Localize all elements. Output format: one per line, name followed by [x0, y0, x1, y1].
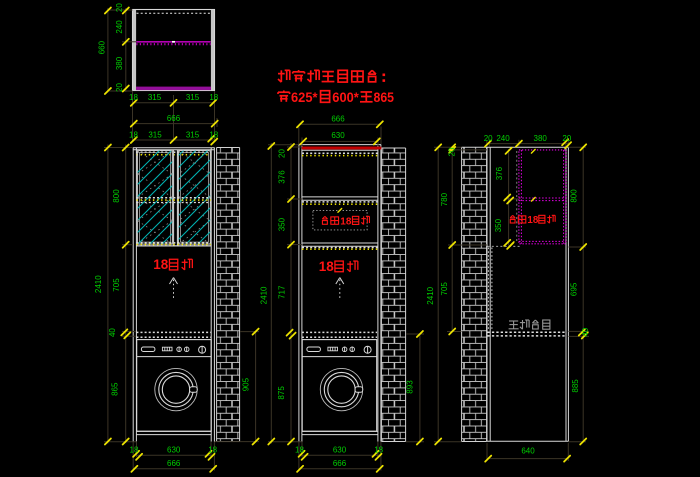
- svg-text:905: 905: [241, 377, 250, 391]
- svg-text:18: 18: [374, 445, 383, 454]
- svg-text:893: 893: [406, 380, 415, 394]
- svg-text:666: 666: [167, 459, 181, 468]
- svg-text:18: 18: [527, 215, 538, 226]
- svg-text:695: 695: [569, 282, 578, 296]
- svg-text:18: 18: [129, 93, 138, 102]
- svg-text:800: 800: [112, 189, 121, 203]
- svg-text:660: 660: [97, 40, 106, 54]
- svg-text:315: 315: [148, 130, 162, 139]
- svg-text:40: 40: [108, 328, 117, 337]
- svg-text:350: 350: [494, 218, 503, 232]
- svg-text:20: 20: [484, 134, 493, 143]
- svg-text:20: 20: [115, 3, 124, 12]
- svg-text:705: 705: [440, 282, 449, 296]
- svg-text:2410: 2410: [260, 286, 269, 304]
- svg-text:18: 18: [340, 216, 352, 227]
- svg-text:865: 865: [111, 382, 120, 396]
- svg-text:865: 865: [374, 89, 395, 105]
- svg-text:20: 20: [448, 147, 457, 156]
- svg-text:18: 18: [130, 445, 139, 454]
- svg-text:315: 315: [148, 93, 162, 102]
- svg-text:18: 18: [209, 93, 218, 102]
- svg-text:666: 666: [333, 459, 347, 468]
- svg-text:705: 705: [112, 278, 121, 292]
- svg-text:875: 875: [277, 386, 286, 400]
- svg-text:625*: 625*: [291, 89, 318, 105]
- svg-text:885: 885: [571, 379, 580, 393]
- svg-text:18: 18: [208, 445, 217, 454]
- svg-text:2410: 2410: [426, 286, 435, 304]
- svg-text:240: 240: [496, 134, 510, 143]
- svg-text:20: 20: [278, 149, 287, 158]
- svg-text:380: 380: [534, 134, 548, 143]
- svg-text:40: 40: [581, 327, 590, 336]
- svg-text:18: 18: [129, 130, 138, 139]
- svg-text:376: 376: [495, 166, 504, 180]
- svg-text:376: 376: [278, 170, 287, 184]
- svg-text:780: 780: [440, 192, 449, 206]
- svg-text:20: 20: [115, 83, 124, 92]
- svg-text:630: 630: [331, 131, 345, 140]
- svg-text:640: 640: [521, 447, 535, 456]
- svg-text:350: 350: [278, 217, 287, 231]
- svg-text:380: 380: [115, 56, 124, 70]
- svg-text:600*: 600*: [332, 89, 359, 105]
- svg-text:20: 20: [562, 134, 571, 143]
- svg-text:18: 18: [319, 259, 335, 274]
- svg-text:2410: 2410: [94, 275, 103, 293]
- svg-text:240: 240: [115, 20, 124, 34]
- svg-text:315: 315: [186, 93, 200, 102]
- svg-text:666: 666: [167, 114, 181, 123]
- svg-text:630: 630: [167, 445, 181, 454]
- svg-text:717: 717: [278, 285, 287, 299]
- svg-text:800: 800: [569, 189, 578, 203]
- svg-text:18: 18: [295, 445, 304, 454]
- svg-text:18: 18: [209, 130, 218, 139]
- svg-text:630: 630: [333, 445, 347, 454]
- svg-text:666: 666: [331, 115, 345, 124]
- svg-text:18: 18: [153, 257, 169, 272]
- svg-text:315: 315: [186, 130, 200, 139]
